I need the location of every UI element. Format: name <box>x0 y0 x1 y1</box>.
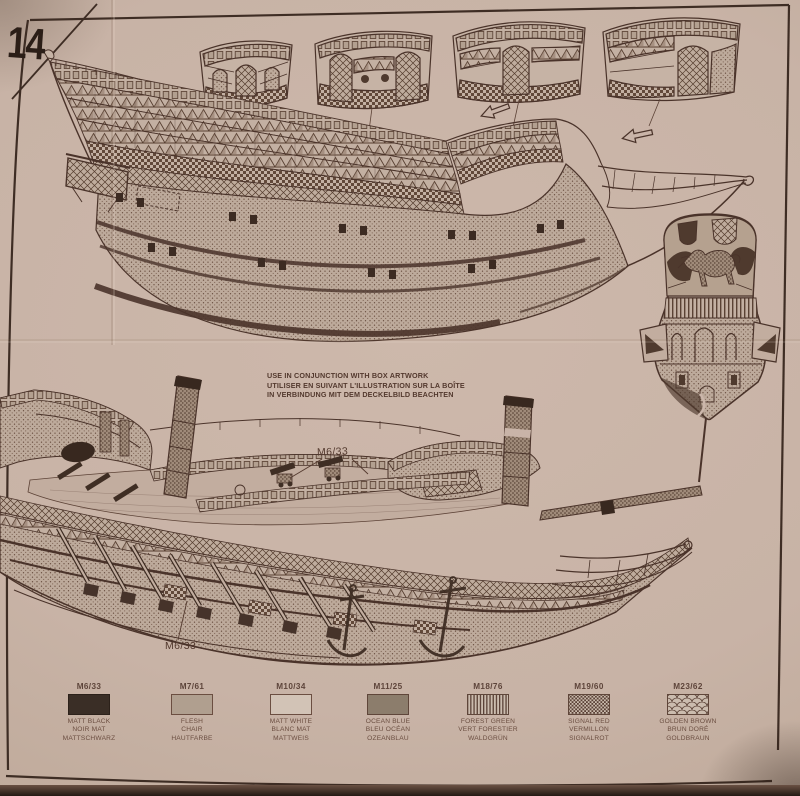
paint-name: OZEANBLAU <box>341 735 434 743</box>
paint-name: WALDGRÜN <box>441 735 534 743</box>
swatch-forest-green <box>467 694 509 715</box>
paint-name: MATT BLACK <box>42 718 135 726</box>
paint-name: BLEU OCÉAN <box>341 726 434 734</box>
paint-code: M19/60 <box>543 681 634 691</box>
paint-name: FLESH <box>145 718 238 726</box>
paint-name: VERT FORESTIER <box>441 726 534 734</box>
arrow-icon <box>479 100 511 122</box>
usage-note-line-de: IN VERBINDUNG MIT DEM DECKELBILD BEACHTE… <box>267 390 465 400</box>
paper-crease-vertical <box>111 0 113 345</box>
step-number: 14 <box>6 18 46 70</box>
swatch-ocean-blue <box>367 694 409 715</box>
paint-name: HAUTFARBE <box>145 735 238 743</box>
paint-name: MATT WHITE <box>244 718 337 726</box>
paint-name: NOIR MAT <box>42 726 135 734</box>
instruction-sheet: 14 USE IN CONJUNCTION WITH BOX ARTWORK U… <box>0 0 800 796</box>
paint-name: CHAIR <box>145 726 238 734</box>
swatch-flesh <box>171 694 213 715</box>
paint-code: M18/76 <box>442 681 533 691</box>
paint-code: M23/62 <box>642 681 733 691</box>
swatch-matt-white <box>270 694 312 715</box>
usage-note-line-en: USE IN CONJUNCTION WITH BOX ARTWORK <box>267 371 465 381</box>
paint-code: M7/61 <box>146 681 237 691</box>
paint-name: SIGNAL RED <box>542 718 635 726</box>
paint-code: M11/25 <box>342 681 433 691</box>
legend-entry-ocean-blue: M11/25 OCEAN BLUE BLEU OCÉAN OZEANBLAU <box>340 681 436 743</box>
stern-view <box>640 214 780 482</box>
arrow-icon <box>621 126 654 145</box>
paper-crease-horizontal <box>0 339 800 341</box>
swatch-signal-red <box>568 694 610 715</box>
usage-note: USE IN CONJUNCTION WITH BOX ARTWORK UTIL… <box>267 371 465 400</box>
paint-callout-deck: M6/33 <box>317 445 349 458</box>
paint-name: VERMILLON <box>542 726 635 734</box>
paint-code: M6/33 <box>43 681 134 691</box>
paint-name: BLANC MAT <box>244 726 337 734</box>
legend-entry-signal-red: M19/60 SIGNAL RED VERMILLON SIGNALROT <box>541 681 637 743</box>
paint-name: MATTSCHWARZ <box>42 735 135 743</box>
usage-note-line-fr: UTILISER EN SUIVANT L'ILLUSTRATION SUR L… <box>267 381 465 391</box>
paint-code: M10/34 <box>245 681 336 691</box>
paper-shadow-bottomright <box>680 706 800 796</box>
deck-perspective-view <box>0 376 702 665</box>
paint-name: SIGNALROT <box>542 735 635 743</box>
legend-entry-matt-black: M6/33 MATT BLACK NOIR MAT MATTSCHWARZ <box>41 681 137 743</box>
detail-panel-2 <box>315 31 432 108</box>
legend-entry-forest-green: M18/76 FOREST GREEN VERT FORESTIER WALDG… <box>440 681 536 743</box>
photo-edge-bottom <box>0 785 800 796</box>
paint-callout-hull: M6/33 <box>165 640 196 652</box>
detail-panel-4 <box>603 18 740 101</box>
legend-entry-flesh: M7/61 FLESH CHAIR HAUTFARBE <box>144 681 240 743</box>
paint-name: MATTWEIS <box>244 735 337 743</box>
legend-entry-matt-white: M10/34 MATT WHITE BLANC MAT MATTWEIS <box>243 681 339 743</box>
swatch-matt-black <box>68 694 110 715</box>
paint-name: FOREST GREEN <box>441 718 534 726</box>
detail-panel-3 <box>453 22 585 102</box>
